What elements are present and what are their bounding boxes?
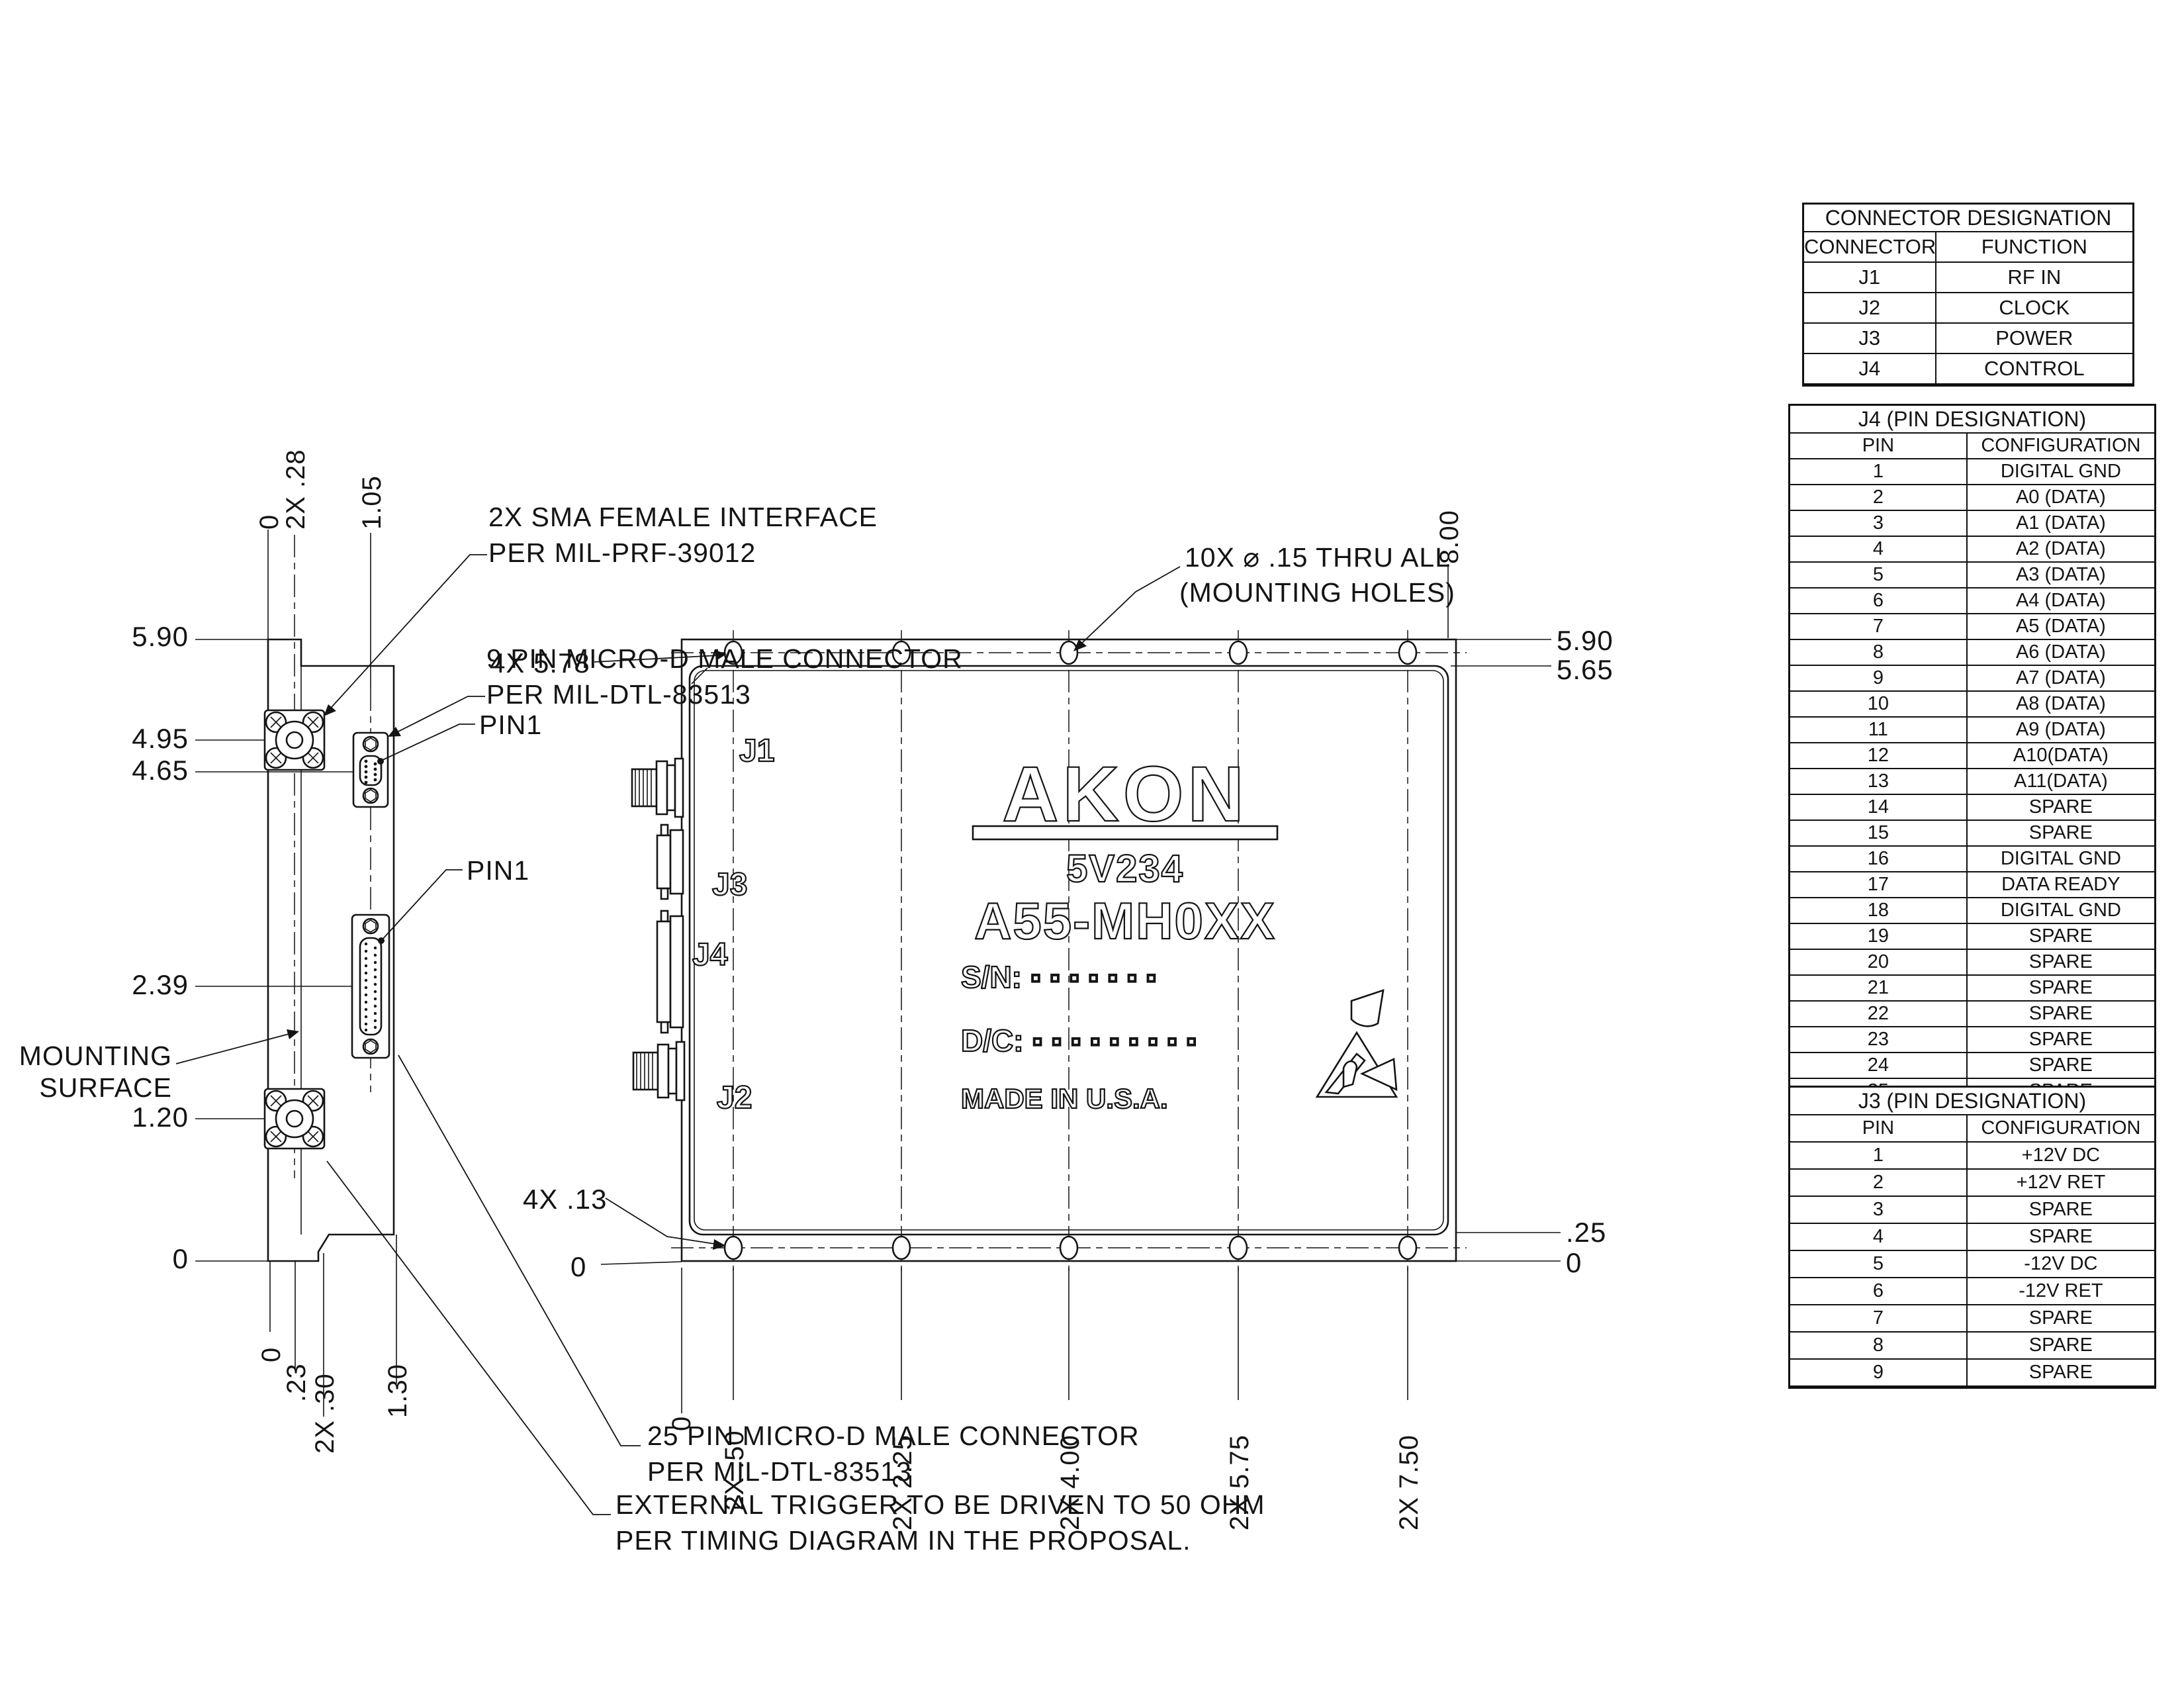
connector-table-title: CONNECTOR DESIGNATION xyxy=(1804,205,2132,232)
dim-4-65: 4.65 xyxy=(106,755,189,786)
dim-1-20: 1.20 xyxy=(106,1102,189,1133)
connector-col-header: CONNECTOR xyxy=(1804,232,1936,261)
connector-designation-table: CONNECTOR DESIGNATION CONNECTORFUNCTION … xyxy=(1802,203,2134,387)
svg-text:AKON: AKON xyxy=(1002,751,1248,838)
dim-col-0: 0 xyxy=(667,1416,697,1431)
engineering-drawing-canvas: J1 J3 J4 J2 AKON 5V234 A55-MH0XX S/N: ▫ … xyxy=(0,0,2184,1688)
j4-pin-col-header: PIN xyxy=(1790,434,1968,458)
edge-dsub25-j4 xyxy=(657,911,683,1033)
table-row: 20SPARE xyxy=(1790,950,2154,976)
mounting-surface-label-1: MOUNTING xyxy=(19,1041,172,1072)
dim-5-90-side: 5.90 xyxy=(106,621,189,653)
dim-25: .25 xyxy=(1566,1217,1606,1248)
table-row: 2+12V RET xyxy=(1790,1170,2154,1197)
dim-1-30: 1.30 xyxy=(383,1364,413,1418)
table-row: J2CLOCK xyxy=(1804,293,2132,324)
j4-table-rows: 1DIGITAL GND2A0 (DATA)3A1 (DATA)4A2 (DAT… xyxy=(1790,459,2154,1105)
table-row: 7A5 (DATA) xyxy=(1790,614,2154,640)
table-row: 12A10(DATA) xyxy=(1790,743,2154,769)
dim-4-95: 4.95 xyxy=(106,723,189,755)
label-j3: J3 xyxy=(712,867,747,902)
model-number: 5V234 xyxy=(1066,847,1184,890)
table-row: 14SPARE xyxy=(1790,795,2154,821)
pin1-label-dsub9: PIN1 xyxy=(479,710,542,741)
dim-8-00: 8.00 xyxy=(1435,510,1465,564)
callout-trigger-line1: EXTERNAL TRIGGER TO BE DRIVEN TO 50 OHM xyxy=(615,1489,1265,1521)
dim-2-39: 2.39 xyxy=(106,969,189,1001)
table-row: 3A1 (DATA) xyxy=(1790,511,2154,537)
side-dsub25 xyxy=(352,915,389,1058)
table-row: 1DIGITAL GND xyxy=(1790,459,2154,485)
callout-holes-line2: (MOUNTING HOLES) xyxy=(1179,577,1455,608)
table-row: 15SPARE xyxy=(1790,821,2154,847)
table-row: 19SPARE xyxy=(1790,924,2154,950)
callout-dsub25-line2: PER MIL-DTL-83513 xyxy=(647,1456,912,1487)
side-sma-j1 xyxy=(265,710,324,770)
callout-sma-line2: PER MIL-PRF-39012 xyxy=(488,538,756,569)
table-row: 7SPARE xyxy=(1790,1305,2154,1333)
table-row: 16DIGITAL GND xyxy=(1790,847,2154,872)
table-row: 13A11(DATA) xyxy=(1790,769,2154,795)
table-row: 18DIGITAL GND xyxy=(1790,898,2154,924)
callout-sma-line1: 2X SMA FEMALE INTERFACE xyxy=(488,502,878,533)
j3-table-title: J3 (PIN DESIGNATION) xyxy=(1790,1088,2154,1115)
table-row: 4A2 (DATA) xyxy=(1790,537,2154,563)
j4-config-col-header: CONFIGURATION xyxy=(1968,434,2154,458)
side-dsub9 xyxy=(353,733,388,807)
j3-pin-col-header: PIN xyxy=(1790,1115,1968,1141)
table-row: 8SPARE xyxy=(1790,1333,2154,1360)
label-j2: J2 xyxy=(717,1080,752,1115)
table-row: 21SPARE xyxy=(1790,976,2154,1002)
dim-0-depth-bottom: 0 xyxy=(257,1347,287,1362)
side-sma-j2 xyxy=(265,1089,324,1149)
dim-0-depth: 0 xyxy=(255,514,285,530)
table-row: 1+12V DC xyxy=(1790,1143,2154,1170)
table-row: 9A7 (DATA) xyxy=(1790,666,2154,692)
j3-config-col-header: CONFIGURATION xyxy=(1968,1115,2154,1141)
dim-col-225: 2X 2.25 xyxy=(888,1434,918,1530)
table-row: 3SPARE xyxy=(1790,1197,2154,1224)
callout-dsub9-line2: PER MIL-DTL-83513 xyxy=(486,679,751,710)
dim-2x-30: 2X .30 xyxy=(310,1373,340,1454)
table-row: 8A6 (DATA) xyxy=(1790,640,2154,666)
edge-dsub9-j3 xyxy=(657,825,683,899)
table-row: 9SPARE xyxy=(1790,1360,2154,1387)
made-in-usa-label: MADE IN U.S.A. xyxy=(961,1083,1168,1114)
table-row: 17DATA READY xyxy=(1790,872,2154,898)
pin1-label-dsub25: PIN1 xyxy=(467,855,529,886)
dim-23: .23 xyxy=(282,1363,312,1402)
dim-4x-13: 4X .13 xyxy=(523,1184,604,1215)
function-col-header: FUNCTION xyxy=(1936,232,2132,261)
table-row: 22SPARE xyxy=(1790,1002,2154,1027)
mounting-surface-label-2: SURFACE xyxy=(19,1072,172,1103)
dim-0-main-bottomleft: 0 xyxy=(570,1251,586,1283)
side-view xyxy=(195,530,396,1417)
table-row: J3POWER xyxy=(1804,324,2132,354)
table-row: 4SPARE xyxy=(1790,1224,2154,1251)
table-row: 23SPARE xyxy=(1790,1027,2154,1053)
table-row: 2A0 (DATA) xyxy=(1790,485,2154,511)
dim-0-side-left: 0 xyxy=(106,1243,189,1275)
j4-table-title: J4 (PIN DESIGNATION) xyxy=(1790,406,2154,434)
table-row: 6-12V RET xyxy=(1790,1278,2154,1305)
table-row: 6A4 (DATA) xyxy=(1790,588,2154,614)
dim-col-750: 2X 7.50 xyxy=(1394,1434,1424,1530)
part-number: A55-MH0XX xyxy=(974,892,1276,950)
dim-1-05: 1.05 xyxy=(357,475,387,530)
table-row: 10A8 (DATA) xyxy=(1790,692,2154,718)
table-row: J1RF IN xyxy=(1804,263,2132,293)
table-row: J4CONTROL xyxy=(1804,354,2132,385)
j3-table-rows: 1+12V DC2+12V RET3SPARE4SPARE5-12V DC6-1… xyxy=(1790,1143,2154,1387)
dim-0-main-right: 0 xyxy=(1566,1247,1582,1279)
dim-4x-5-78: 4X 5.78 xyxy=(490,647,589,679)
dim-2x-28: 2X .28 xyxy=(281,449,311,530)
table-row: 24SPARE xyxy=(1790,1053,2154,1079)
edge-sma-j1 xyxy=(632,759,683,817)
label-j4: J4 xyxy=(692,937,728,972)
dim-5-65: 5.65 xyxy=(1557,654,1614,686)
table-row: 11A9 (DATA) xyxy=(1790,718,2154,743)
j4-pin-designation-table: J4 (PIN DESIGNATION) PINCONFIGURATION 1D… xyxy=(1788,404,2156,1107)
dim-col-575: 2X 5.75 xyxy=(1225,1434,1255,1530)
akon-logo: AKON xyxy=(973,751,1277,839)
dim-5-90-main: 5.90 xyxy=(1557,625,1614,657)
callout-holes-line1: 10X ⌀ .15 THRU ALL xyxy=(1185,541,1451,573)
table-row: 5-12V DC xyxy=(1790,1251,2154,1278)
j3-pin-designation-table: J3 (PIN DESIGNATION) PINCONFIGURATION 1+… xyxy=(1788,1086,2156,1389)
dim-col-400: 2X 4.00 xyxy=(1056,1434,1085,1530)
dim-col-50: 2X .50 xyxy=(720,1430,750,1511)
serial-number-field: S/N: ▫ ▫ ▫ ▫ ▫ ▫ ▫ xyxy=(961,960,1157,994)
edge-sma-j2 xyxy=(633,1042,684,1100)
label-j1: J1 xyxy=(739,733,774,769)
date-code-field: D/C: ▫ ▫ ▫ ▫ ▫ ▫ ▫ ▫ ▫ xyxy=(961,1023,1197,1058)
table-row: 5A3 (DATA) xyxy=(1790,563,2154,588)
connector-table-rows: J1RF INJ2CLOCKJ3POWERJ4CONTROL xyxy=(1804,263,2132,385)
